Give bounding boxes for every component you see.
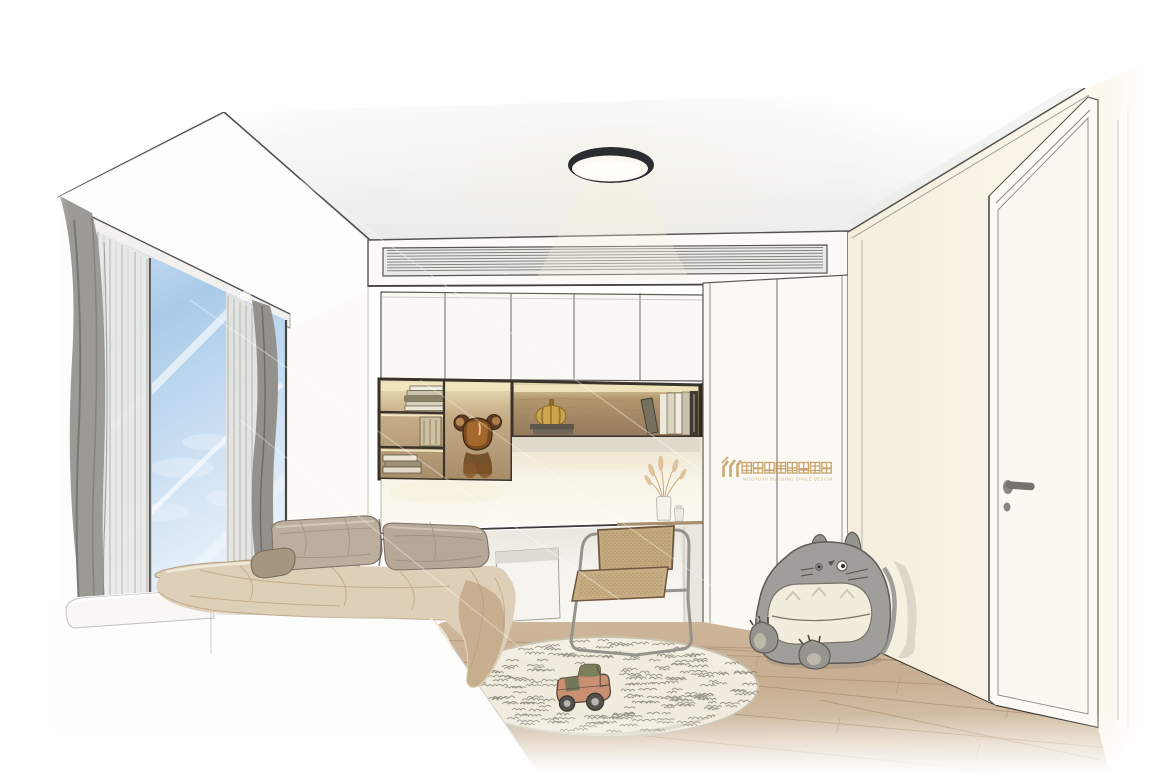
svg-text:MOCHUAN BUILDING SPACE DESIGN: MOCHUAN BUILDING SPACE DESIGN: [743, 477, 833, 482]
